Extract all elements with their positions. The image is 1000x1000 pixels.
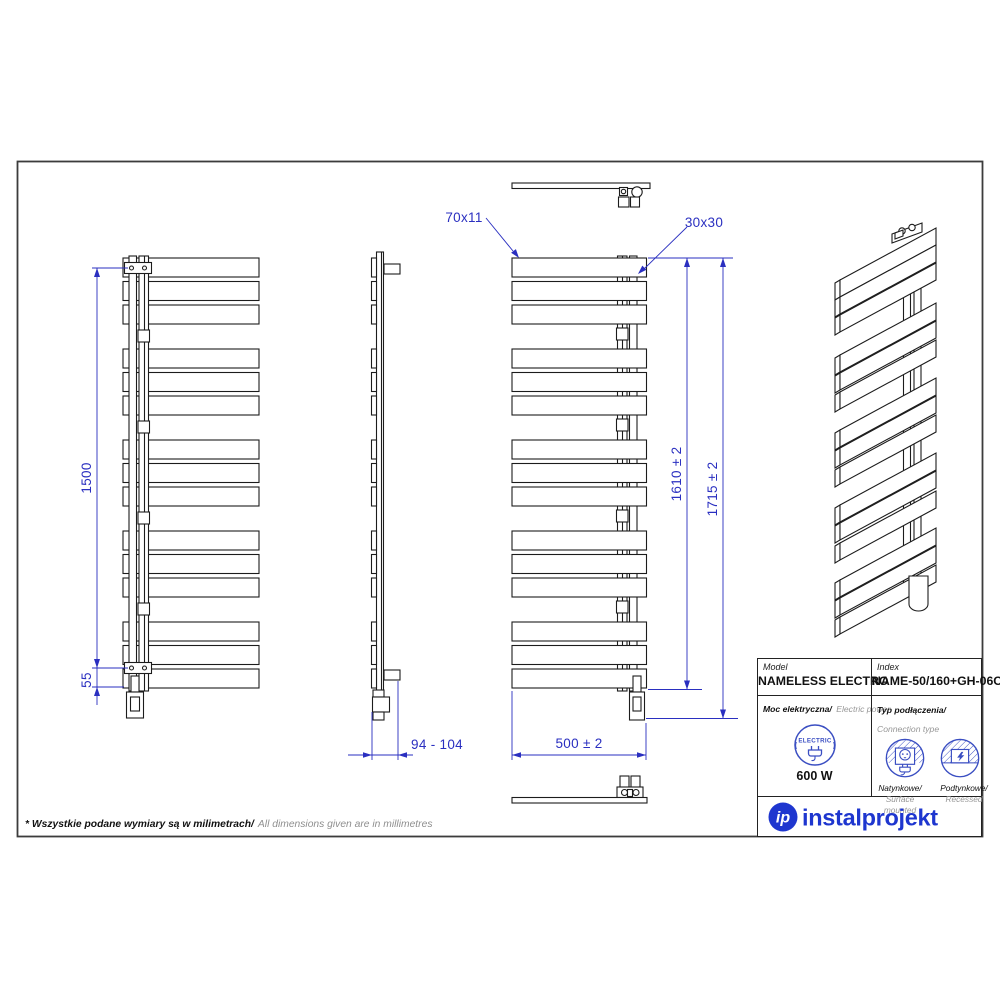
collector-side (377, 252, 384, 692)
power-value: 600 W (796, 769, 832, 783)
brand-row: ip instalprojekt (758, 797, 981, 836)
connection-label: Typ podłączenia/ Connection type (872, 696, 992, 737)
front-view (123, 256, 259, 718)
model-cell: Model NAMELESS ELECTRO (758, 659, 871, 695)
front-view-dimensioned (512, 183, 650, 803)
dim-body-height: 1610 ± 2 (648, 258, 733, 690)
wall-bracket-top (384, 264, 400, 274)
title-block: Model NAMELESS ELECTRO Index NAME-50/160… (757, 658, 982, 837)
dim-label-panel-profile: 70x11 (445, 210, 482, 225)
recessed-label-pl: Podtynkowe/ (940, 783, 988, 793)
model-label: Model (758, 659, 871, 672)
electric-badge-text: ELECTRIC (798, 738, 832, 745)
perspective-view (835, 223, 936, 637)
dim-label-mounting-height: 1500 (79, 462, 94, 493)
dim-width: 500 ± 2 (512, 691, 646, 760)
power-label-pl: Moc elektryczna/ (763, 704, 832, 714)
dim-label-total-height: 1715 ± 2 (705, 462, 720, 517)
brand-name: instalprojekt (802, 804, 938, 830)
dim-1500: 1500 55 (79, 268, 128, 705)
recessed-icon (938, 738, 982, 782)
index-value: NAME-50/160+GH-06C1 (872, 674, 1000, 688)
technical-drawing: 1500 55 94 - 104 (0, 0, 1000, 1000)
footnote-en: All dimensions given are in millimetres (258, 819, 433, 830)
leader-collector-profile: 30x30 (638, 215, 723, 274)
brand-monogram: ip (776, 809, 790, 826)
model-value: NAMELESS ELECTRO (758, 674, 871, 688)
dim-label-wall-distance: 94 - 104 (411, 737, 463, 752)
connection-cell: Typ podłączenia/ Connection type (871, 696, 992, 796)
title-block-row-specs: Moc elektryczna/ Electric power ELECTRIC… (758, 696, 981, 797)
heating-element-cylinder (909, 576, 928, 611)
mounting-bracket-bottom (125, 663, 152, 674)
title-block-row-model: Model NAMELESS ELECTRO Index NAME-50/160… (758, 659, 981, 696)
index-cell: Index NAME-50/160+GH-06C1 (871, 659, 1000, 695)
footnote: * Wszystkie podane wymiary są w milimetr… (25, 819, 432, 830)
brand-logo: ip instalprojekt (767, 801, 972, 833)
connection-label-en: Connection type (877, 724, 939, 734)
dim-label-bottom-offset: 55 (79, 672, 94, 688)
connection-label-pl: Typ podłączenia/ (877, 705, 946, 715)
collector-tube (139, 256, 149, 691)
index-label: Index (872, 659, 1000, 672)
dim-wall-distance: 94 - 104 (348, 681, 463, 760)
power-cell: Moc elektryczna/ Electric power ELECTRIC… (758, 696, 871, 796)
dim-total-height: 1715 ± 2 (646, 258, 738, 719)
side-view (372, 252, 401, 720)
surface-mounted-icon (883, 738, 927, 782)
plan-view-bottom (512, 776, 647, 803)
mounting-bracket-top (125, 263, 152, 274)
heating-element-side (373, 690, 390, 720)
footnote-pl: * Wszystkie podane wymiary są w milimetr… (25, 819, 254, 830)
plan-view-top (512, 183, 650, 207)
dim-label-collector-profile: 30x30 (685, 215, 723, 230)
electric-power-icon: ELECTRIC (792, 722, 838, 768)
datasheet-page: 1500 55 94 - 104 (0, 0, 1000, 1000)
collector-tube (129, 256, 137, 691)
surface-label-pl: Natynkowe/ (878, 783, 921, 793)
wall-bracket-bottom (384, 670, 400, 680)
dim-label-body-height: 1610 ± 2 (669, 447, 684, 502)
leader-panel-profile: 70x11 (445, 210, 519, 258)
dim-label-width: 500 ± 2 (555, 736, 602, 751)
